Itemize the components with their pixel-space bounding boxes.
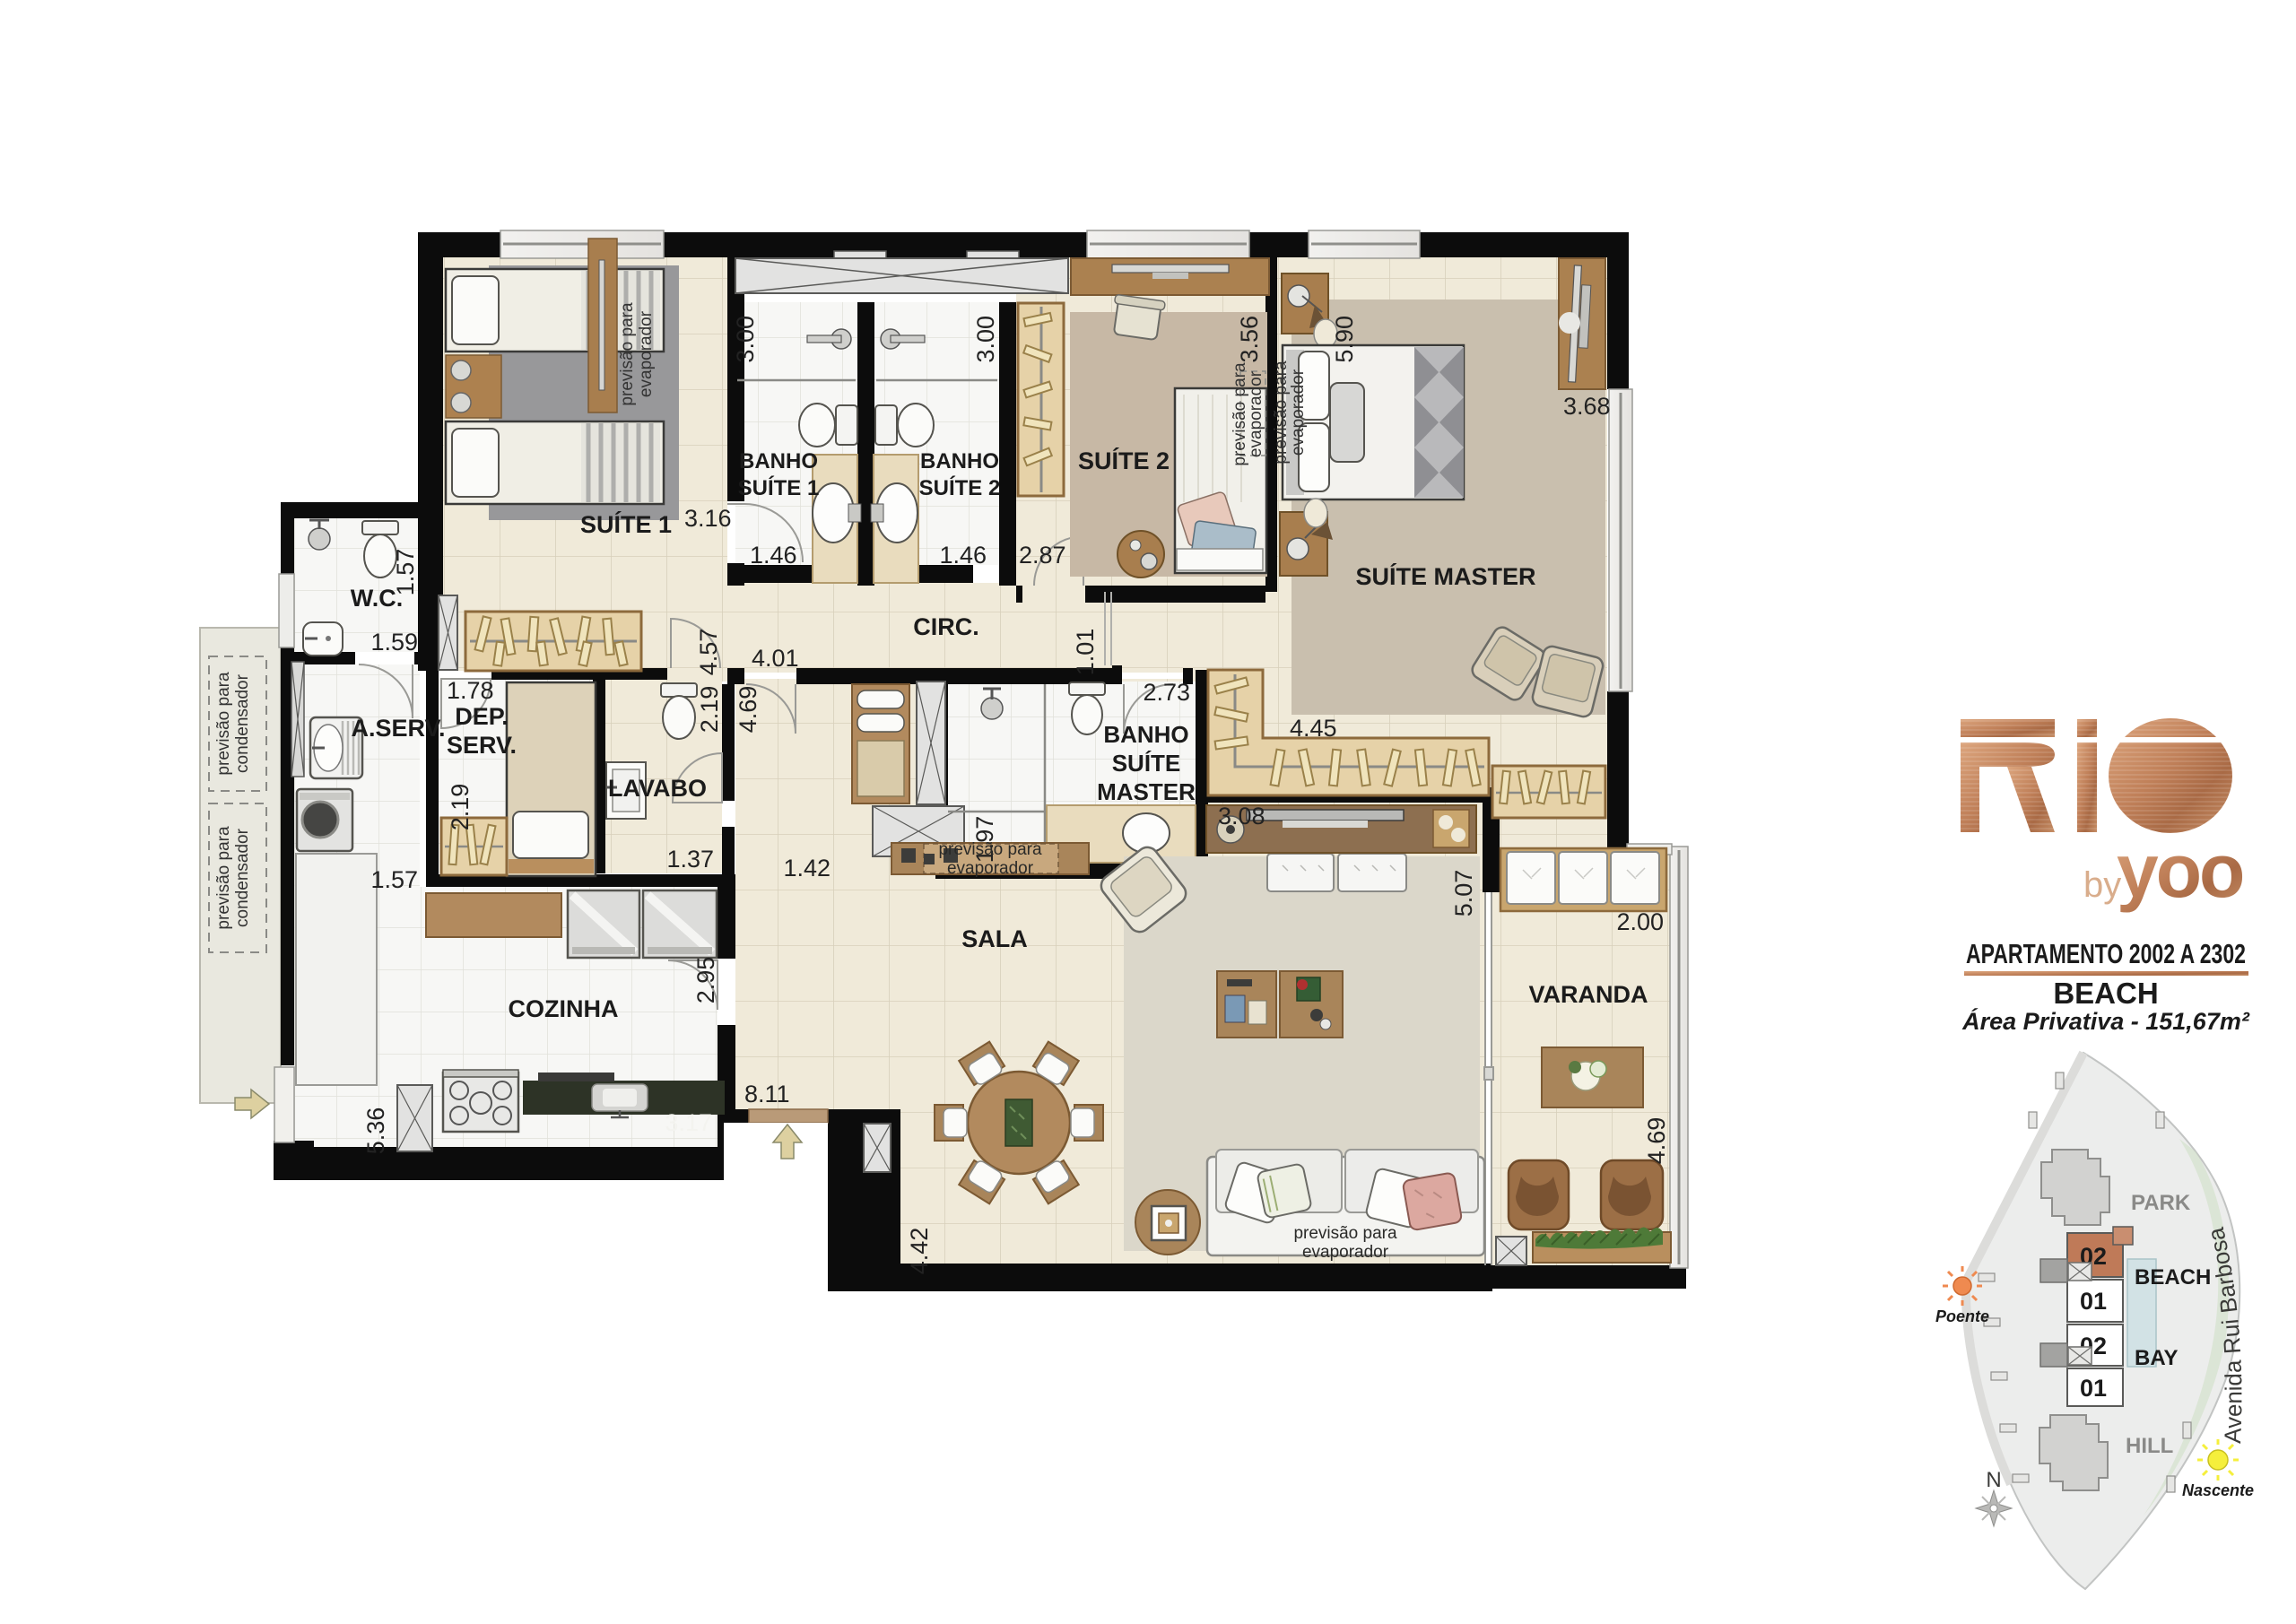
svg-text:5.07: 5.07: [1450, 870, 1477, 917]
svg-text:1.59: 1.59: [370, 629, 418, 656]
svg-text:evaporador: evaporador: [1302, 1243, 1389, 1262]
svg-text:PARK: PARK: [2131, 1191, 2191, 1215]
svg-text:SALA: SALA: [961, 925, 1028, 952]
svg-text:BANHO: BANHO: [739, 449, 818, 473]
svg-text:SERV.: SERV.: [447, 732, 517, 759]
svg-text:evaporador: evaporador: [1289, 369, 1308, 456]
svg-text:2.19: 2.19: [447, 784, 474, 831]
svg-text:4.42: 4.42: [906, 1228, 933, 1275]
svg-text:BEACH: BEACH: [2135, 1265, 2211, 1290]
svg-text:5.36: 5.36: [362, 1107, 389, 1155]
svg-text:8.11: 8.11: [744, 1081, 790, 1107]
svg-text:1.78: 1.78: [447, 677, 494, 704]
svg-text:4.69: 4.69: [1643, 1117, 1670, 1165]
svg-text:4.57: 4.57: [695, 629, 722, 676]
svg-text:3.17: 3.17: [665, 1109, 712, 1136]
svg-text:SUÍTE 2: SUÍTE 2: [1078, 447, 1170, 474]
svg-text:A.SERV.: A.SERV.: [351, 715, 445, 742]
svg-text:1.46: 1.46: [939, 542, 987, 569]
svg-text:3.68: 3.68: [1563, 393, 1611, 420]
svg-text:4.45: 4.45: [1290, 715, 1337, 742]
svg-text:2.73: 2.73: [1143, 679, 1190, 706]
svg-text:LAVABO: LAVABO: [608, 775, 707, 802]
svg-text:3.08: 3.08: [1218, 803, 1265, 829]
svg-text:DEP.: DEP.: [455, 703, 509, 730]
svg-text:3.00: 3.00: [732, 316, 759, 363]
svg-text:SUÍTE MASTER: SUÍTE MASTER: [1355, 562, 1535, 590]
svg-text:2.87: 2.87: [1019, 542, 1066, 569]
svg-text:BANHO: BANHO: [1103, 721, 1188, 748]
svg-text:evaporador: evaporador: [637, 310, 656, 397]
svg-text:1.37: 1.37: [666, 846, 714, 873]
svg-text:BANHO: BANHO: [920, 449, 999, 473]
svg-text:SUÍTE 1: SUÍTE 1: [738, 475, 820, 500]
svg-text:HILL: HILL: [2126, 1434, 2173, 1458]
svg-text:previsão para: previsão para: [1293, 1224, 1397, 1243]
svg-text:4.01: 4.01: [752, 645, 799, 672]
svg-text:SUÍTE 2: SUÍTE 2: [919, 475, 1001, 500]
svg-text:previsão para: previsão para: [214, 672, 233, 776]
svg-text:SUÍTE 1: SUÍTE 1: [580, 510, 672, 538]
svg-text:3.16: 3.16: [684, 505, 732, 532]
svg-text:by: by: [2083, 865, 2121, 905]
svg-text:evaporador: evaporador: [947, 859, 1034, 878]
svg-text:Área Privativa - 151,67m²: Área Privativa - 151,67m²: [1961, 1007, 2250, 1035]
svg-text:condensador: condensador: [233, 828, 252, 927]
svg-text:1.57: 1.57: [392, 549, 419, 596]
svg-text:2.19: 2.19: [696, 686, 723, 734]
svg-text:4.69: 4.69: [735, 686, 761, 734]
svg-text:condensador: condensador: [233, 673, 252, 773]
svg-text:2.00: 2.00: [1616, 908, 1664, 935]
svg-text:VARANDA: VARANDA: [1529, 981, 1648, 1008]
svg-text:previsão para: previsão para: [214, 826, 233, 930]
svg-text:1.42: 1.42: [783, 855, 831, 881]
svg-text:COZINHA: COZINHA: [509, 995, 619, 1022]
svg-text:Nascente: Nascente: [2182, 1481, 2254, 1499]
svg-text:CIRC.: CIRC.: [913, 613, 979, 640]
svg-text:previsão para: previsão para: [1272, 360, 1291, 465]
svg-text:N: N: [1986, 1468, 2001, 1492]
svg-text:3.56: 3.56: [1236, 316, 1263, 363]
svg-text:3.00: 3.00: [972, 316, 999, 363]
svg-text:2.95: 2.95: [692, 957, 719, 1004]
svg-text:APARTAMENTO 2002 A 2302: APARTAMENTO 2002 A 2302: [1966, 938, 2246, 969]
svg-text:BAY: BAY: [2135, 1346, 2178, 1370]
svg-text:BEACH: BEACH: [2053, 977, 2158, 1010]
svg-text:Poente: Poente: [1935, 1307, 1989, 1325]
svg-text:1.57: 1.57: [370, 866, 418, 893]
svg-text:evaporador: evaporador: [1247, 370, 1265, 457]
svg-text:5.90: 5.90: [1331, 316, 1358, 363]
svg-text:01: 01: [2080, 1288, 2107, 1315]
svg-text:previsão para: previsão para: [618, 302, 637, 406]
svg-text:MASTER: MASTER: [1097, 778, 1196, 805]
svg-text:01: 01: [2080, 1375, 2107, 1402]
svg-text:1.46: 1.46: [750, 542, 797, 569]
svg-text:SUÍTE: SUÍTE: [1112, 750, 1181, 777]
svg-text:yoo: yoo: [2117, 829, 2243, 913]
svg-text:previsão para: previsão para: [938, 840, 1042, 859]
svg-text:1.01: 1.01: [1072, 629, 1099, 676]
